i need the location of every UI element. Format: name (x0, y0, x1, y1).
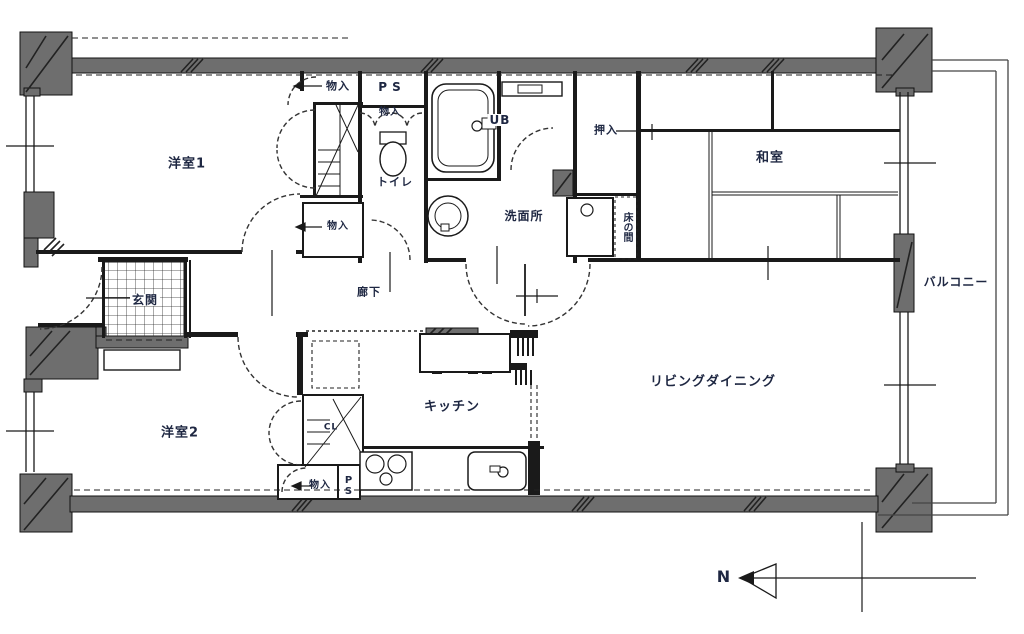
floor-plan: 洋室1 物入 PS 物入 トイレ UB 洗面所 押入 和室 床の間 バルコニー … (0, 0, 1024, 634)
room-label-tokonoma: 床の間 (621, 212, 631, 242)
floor-plan-drawing (0, 0, 1024, 634)
room-label-senmenjo: 洗面所 (504, 210, 543, 222)
room-label-yoshitsu1: 洋室1 (168, 158, 206, 171)
storage-label-upper-small: 物入 (379, 108, 401, 118)
storage-label-top: 物入 (326, 81, 350, 92)
ps-label-top: PS (378, 81, 405, 93)
room-label-ub: UB (488, 114, 513, 126)
storage-label-mid: 物入 (327, 222, 349, 232)
north-label: N (717, 569, 731, 585)
room-label-genkan: 玄関 (130, 294, 160, 306)
room-label-rouka: 廊下 (357, 287, 381, 298)
room-label-balcony: バルコニー (924, 276, 989, 288)
washing-machine-icon (581, 204, 593, 216)
room-label-oshiire: 押入 (594, 125, 618, 136)
north-arrow-icon (738, 564, 976, 598)
room-label-yoshitsu2: 洋室2 (161, 427, 199, 440)
bath-faucet-icon (472, 121, 482, 131)
ps-label-bottom: PS (343, 475, 353, 497)
room-label-toilet: トイレ (377, 177, 413, 188)
room-label-kitchen: キッチン (424, 401, 480, 414)
room-label-washitsu: 和室 (756, 152, 784, 165)
fixtures (360, 84, 593, 490)
storage-label-bottom: 物入 (309, 481, 331, 491)
kitchen-divider-hatch (516, 338, 533, 385)
closet-label-cl: CL (324, 424, 338, 433)
room-label-living: リビングダイニング (650, 376, 776, 389)
tatami-lines (709, 132, 898, 258)
